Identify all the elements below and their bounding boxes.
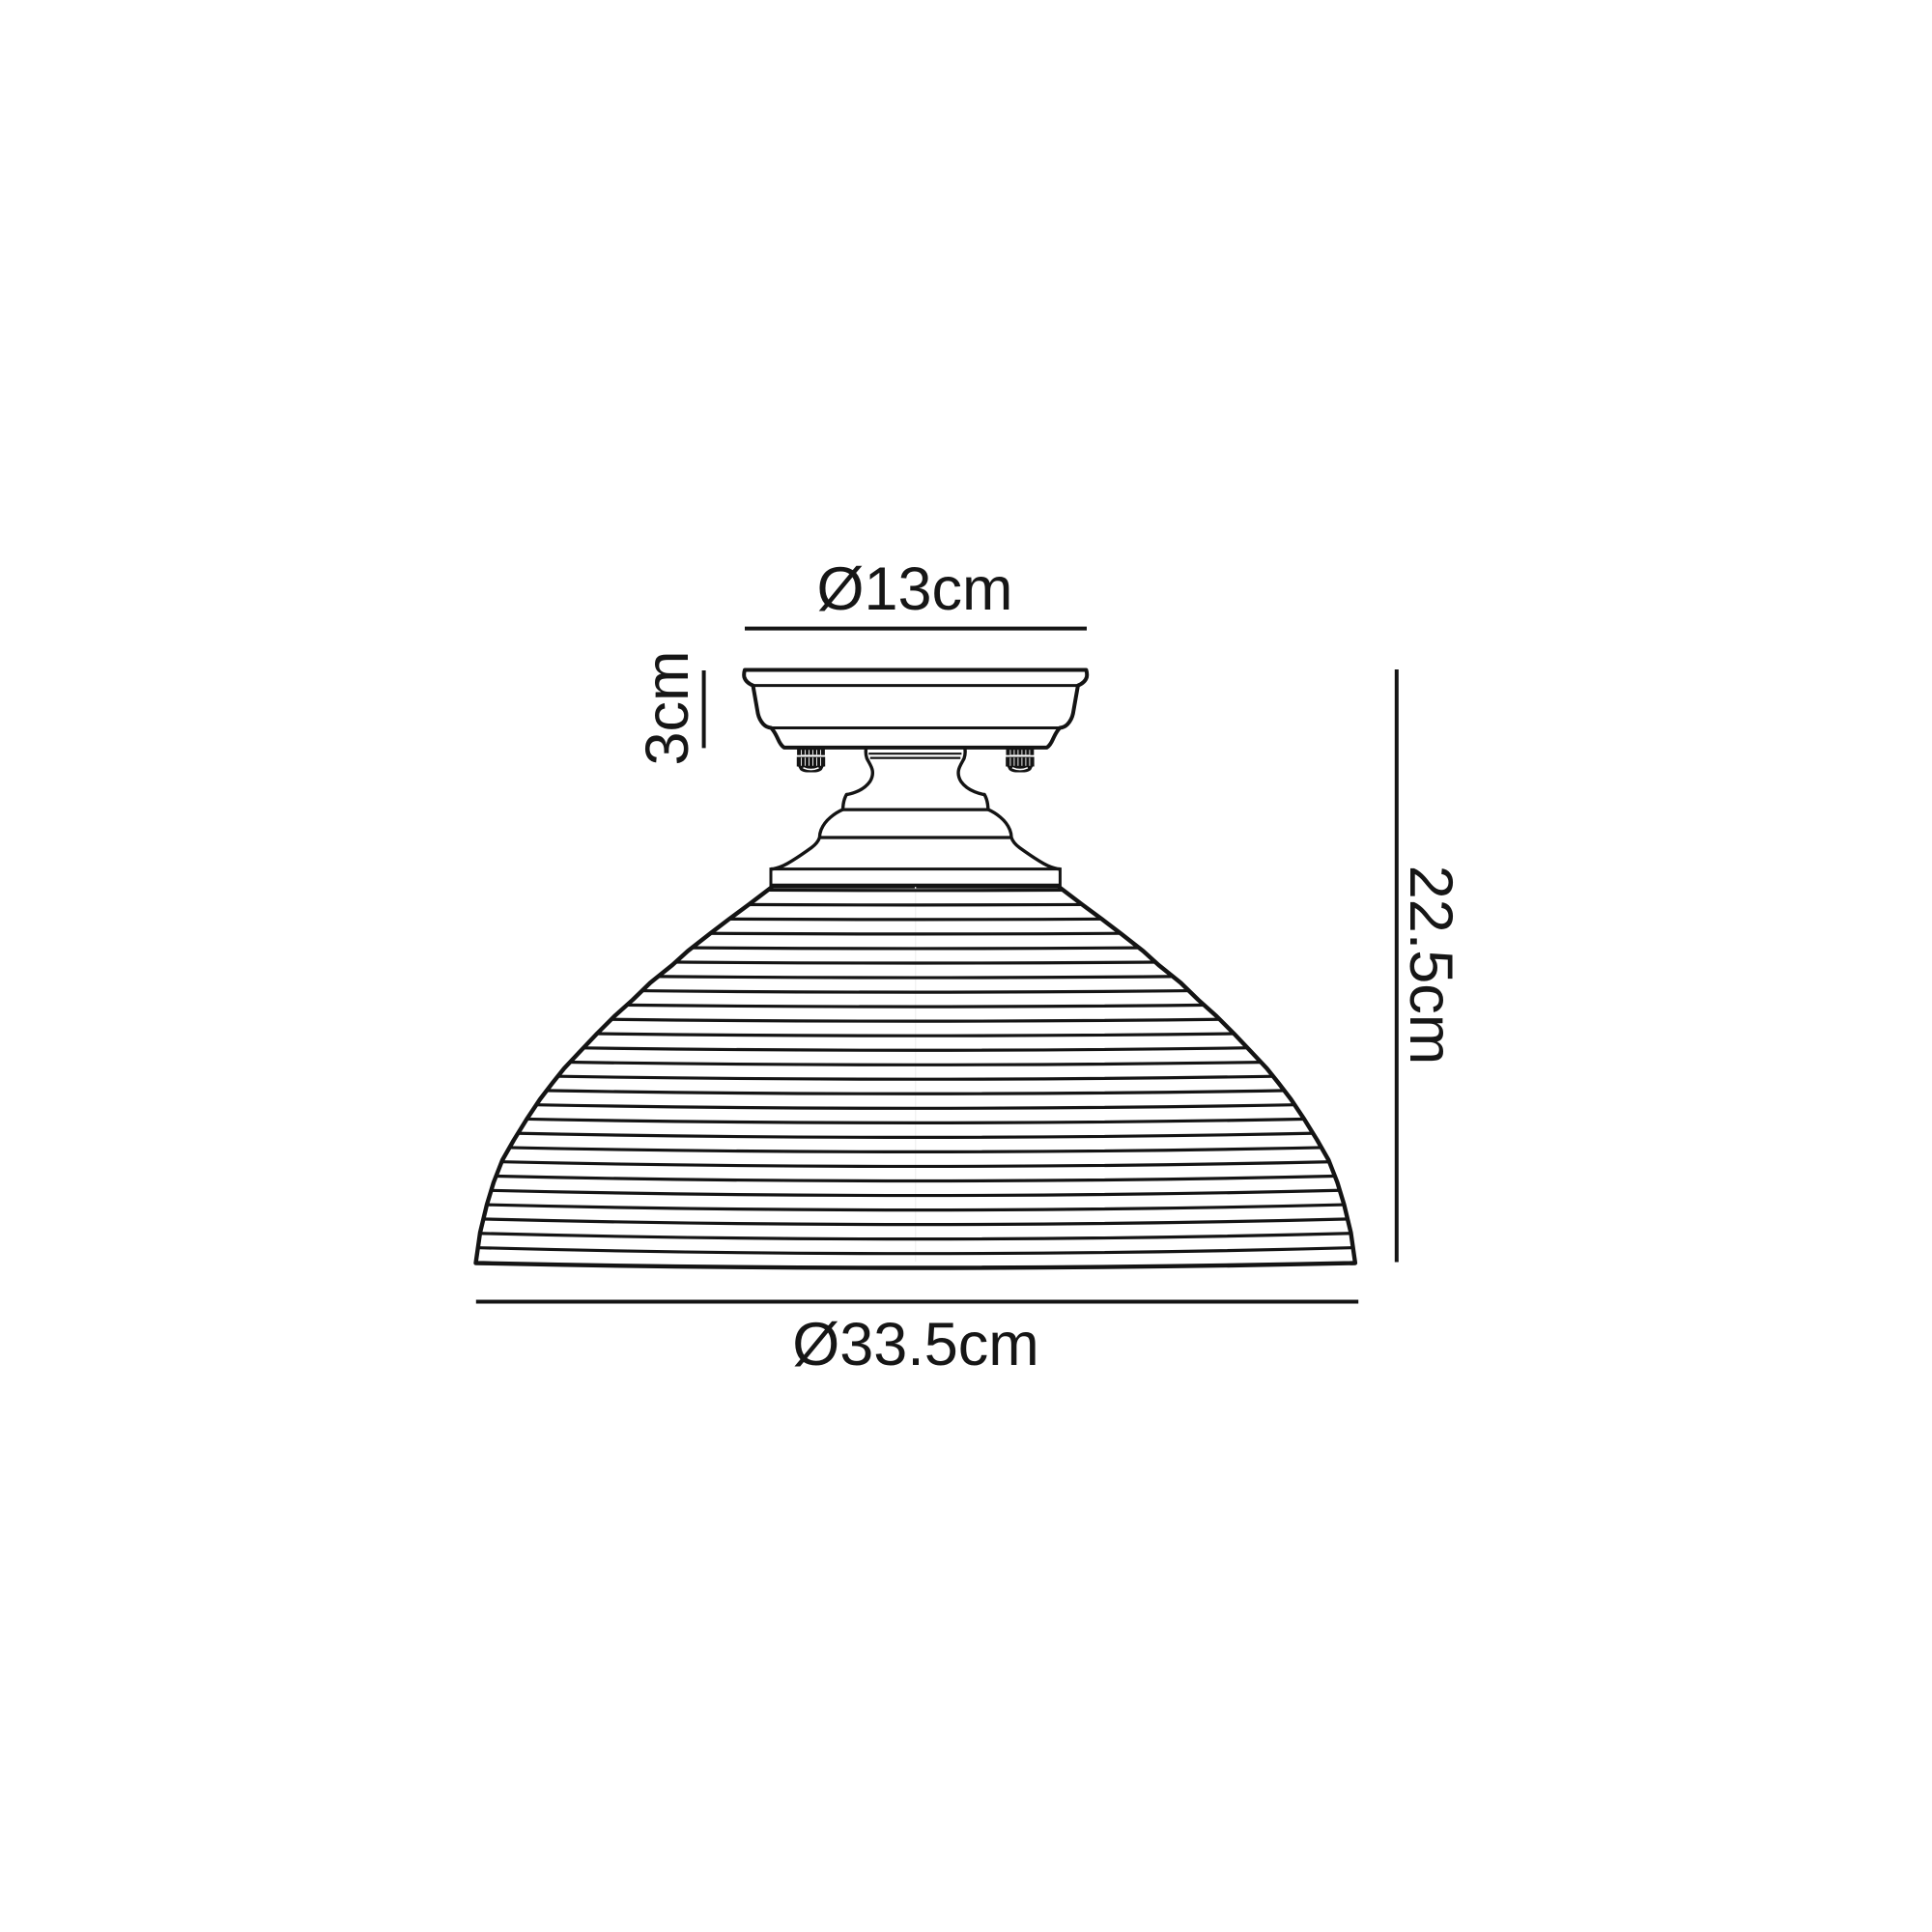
svg-text:3cm: 3cm: [634, 650, 701, 765]
svg-text:Ø33.5cm: Ø33.5cm: [792, 1311, 1039, 1378]
svg-text:22.5cm: 22.5cm: [1397, 866, 1464, 1065]
svg-text:Ø13cm: Ø13cm: [816, 555, 1012, 623]
